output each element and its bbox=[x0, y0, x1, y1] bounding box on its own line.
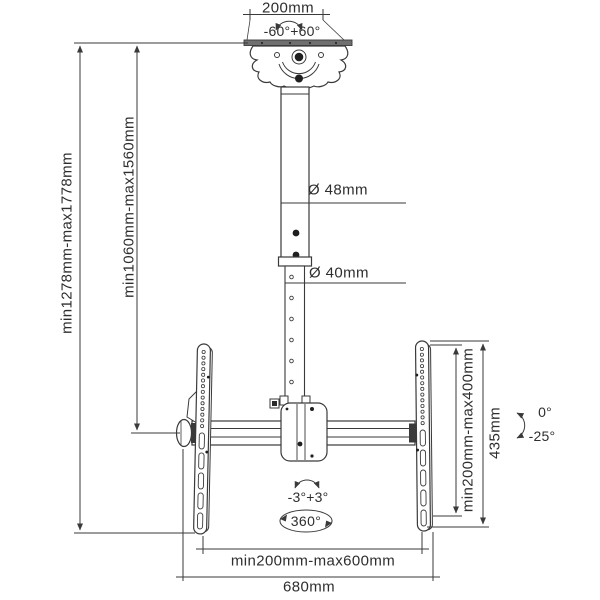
label-crossbar-width: 680mm bbox=[283, 579, 335, 596]
right-vesa-rail bbox=[415, 341, 432, 531]
label-swivel-range: -60°+60° bbox=[264, 23, 321, 39]
level-arrow bbox=[295, 480, 319, 488]
label-upper-pole-diameter: Ø 48mm bbox=[308, 182, 368, 199]
pivot-bolt bbox=[295, 53, 304, 62]
dim-pole-drop bbox=[131, 46, 180, 433]
lock-bolt bbox=[295, 75, 303, 83]
ceiling-plate bbox=[244, 40, 352, 90]
dim-total-drop bbox=[74, 43, 248, 533]
label-tilt-up: 0° bbox=[538, 404, 552, 420]
mount-assembly bbox=[177, 40, 433, 534]
label-vesa-vertical: min200mm-max400mm bbox=[460, 348, 477, 512]
label-lower-pole-diameter: Ø 40mm bbox=[309, 265, 369, 282]
tilt-arrow bbox=[517, 413, 525, 438]
right-clamp bbox=[409, 424, 416, 443]
label-level-adjust: -3°+3° bbox=[288, 489, 329, 505]
upper-pole bbox=[281, 87, 309, 258]
dim-bracket-height bbox=[427, 341, 489, 527]
label-rotation-360: 360° bbox=[291, 513, 322, 529]
dim-vesa-horizontal bbox=[196, 532, 429, 554]
ceiling-tv-mount-diagram: 200mm -60°+60° min1278mm-max1778mm min10… bbox=[0, 0, 600, 600]
label-pole-drop: min1060mm-max1560mm bbox=[121, 116, 138, 298]
left-vesa-rail bbox=[194, 344, 213, 534]
lower-pole bbox=[279, 257, 312, 404]
label-total-drop: min1278mm-max1778mm bbox=[59, 152, 76, 334]
dim-vesa-vertical bbox=[430, 345, 462, 516]
label-tilt-down: -25° bbox=[529, 428, 556, 444]
label-vesa-horizontal: min200mm-max600mm bbox=[231, 553, 395, 570]
label-bracket-height: 435mm bbox=[487, 407, 504, 459]
line-drawing bbox=[0, 0, 600, 600]
label-top-width: 200mm bbox=[262, 0, 314, 17]
